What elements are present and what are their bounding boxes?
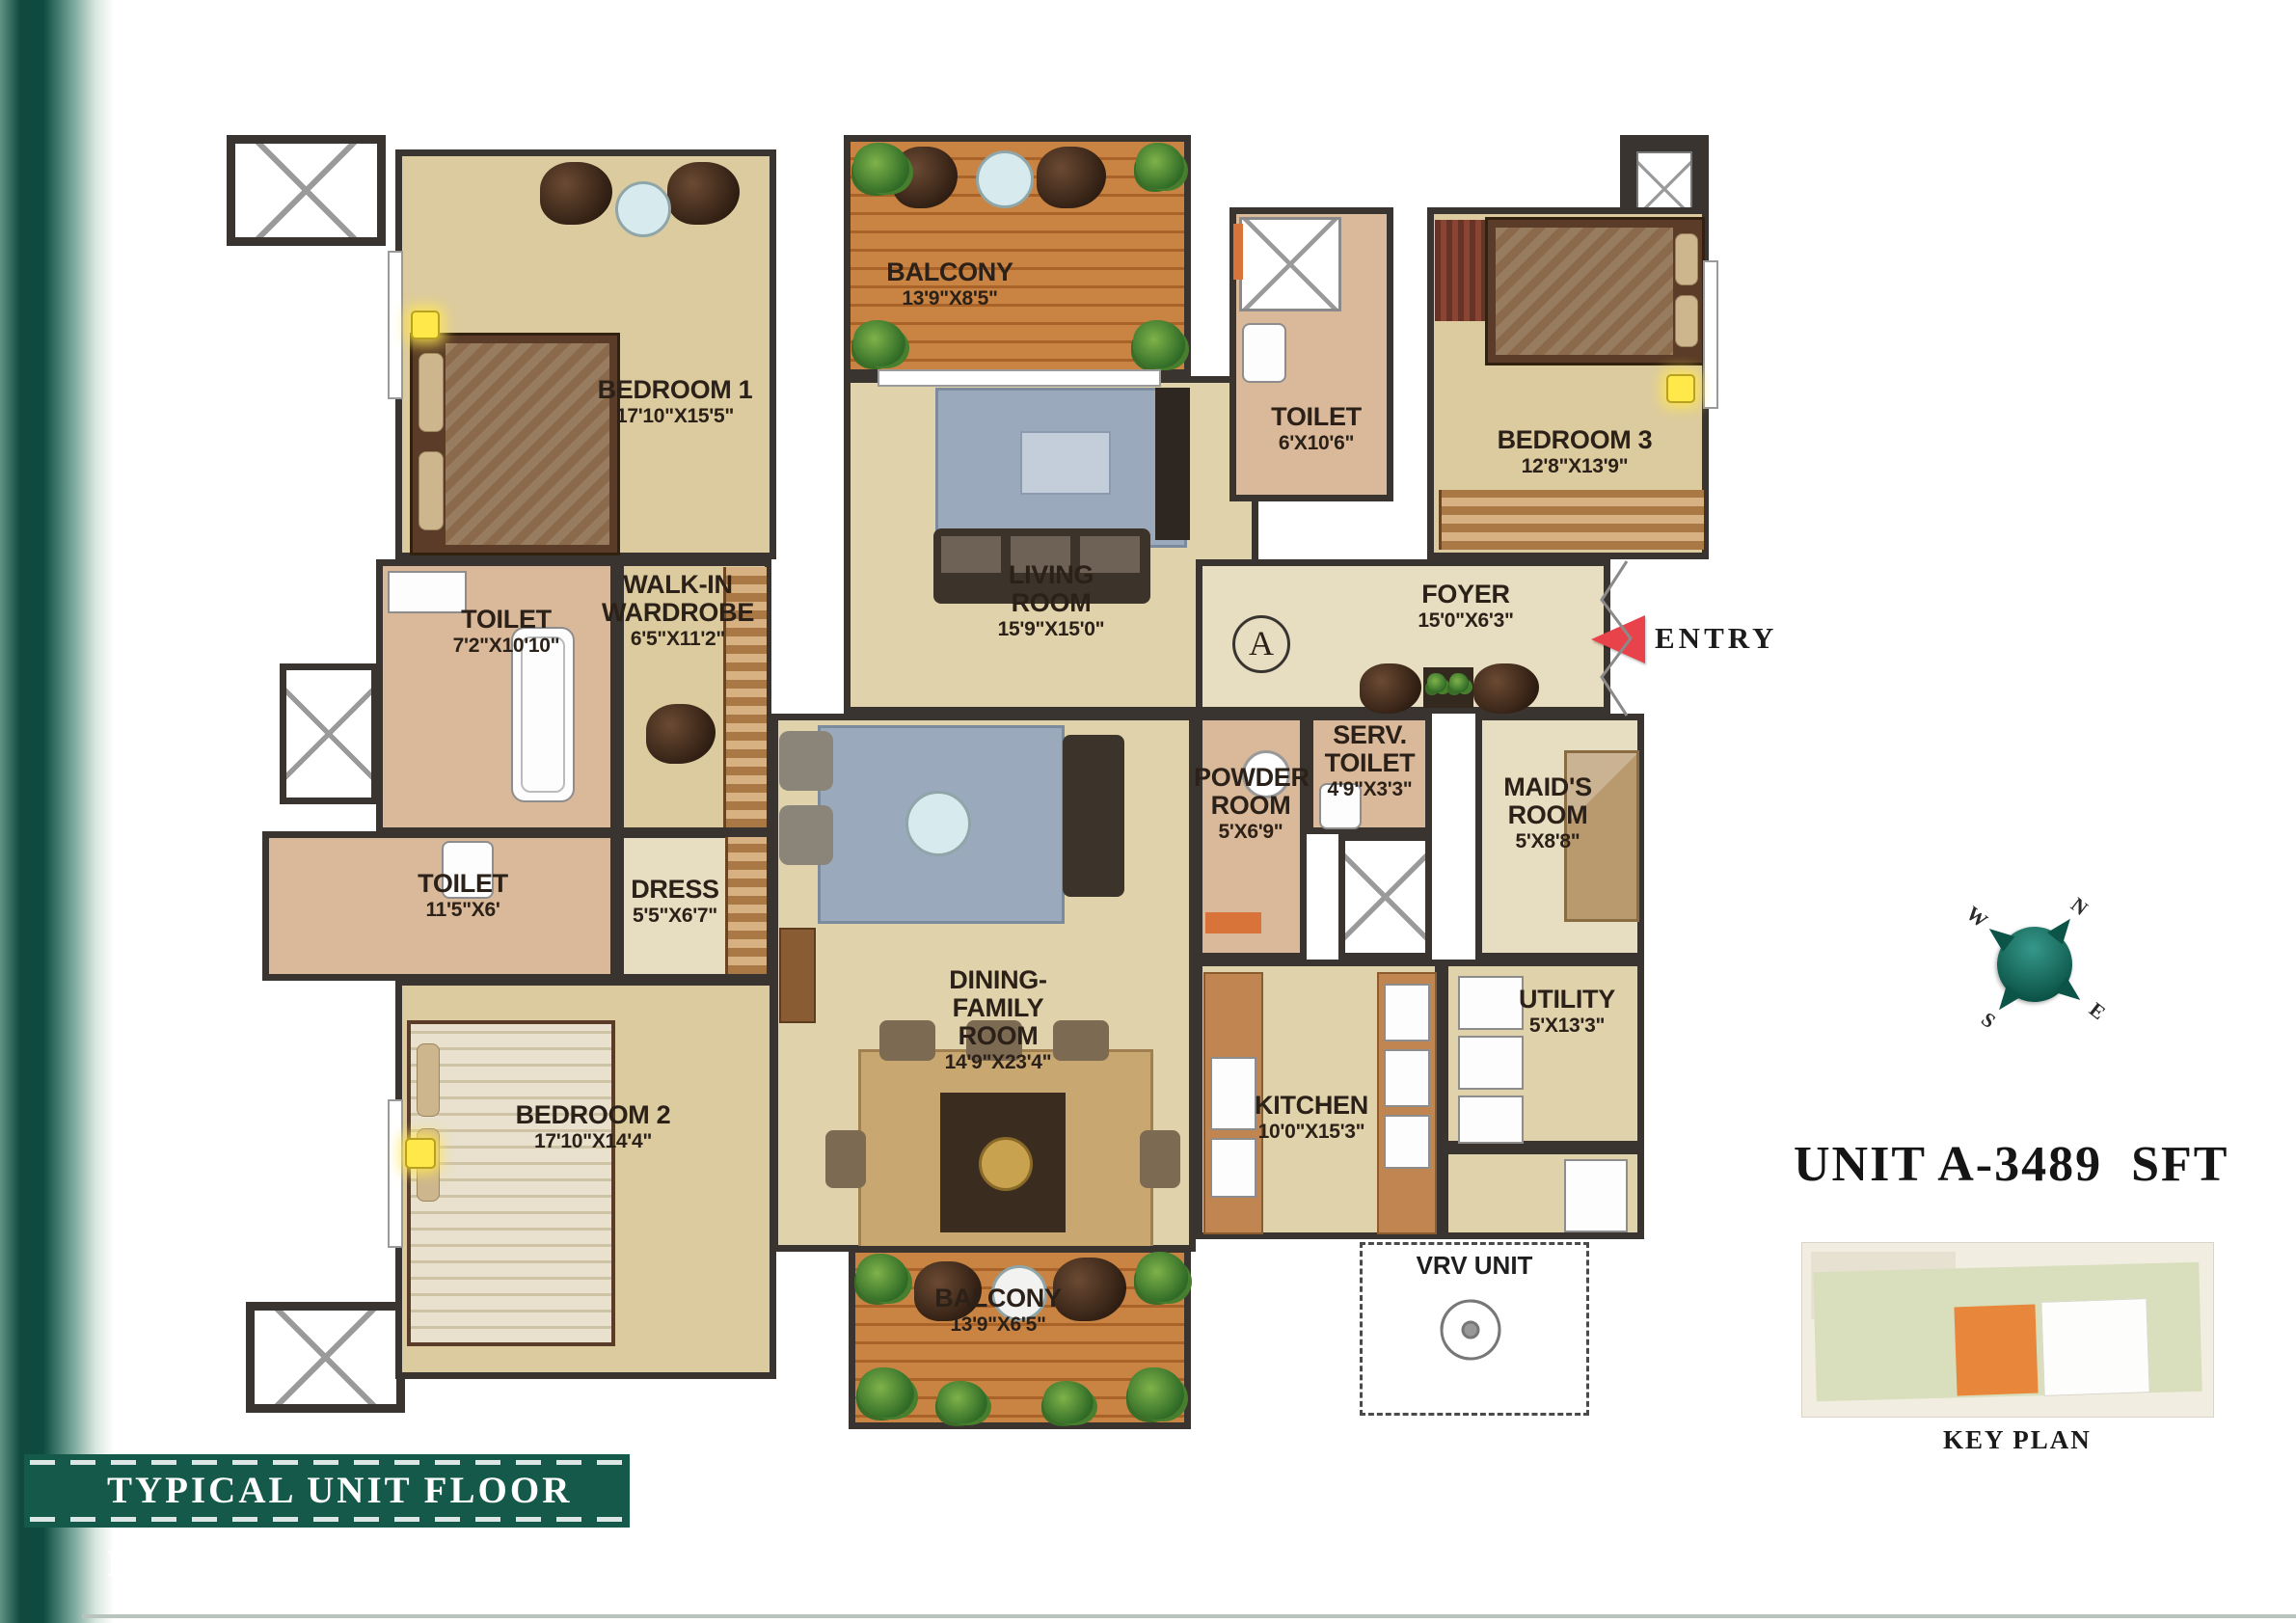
compass-rose: N S E W — [1924, 853, 2146, 1075]
side-table — [615, 181, 671, 237]
sink-unit — [1458, 1096, 1524, 1144]
vrv-unit-label: VRV UNIT — [1363, 1251, 1586, 1281]
shaft-x-icon — [1338, 834, 1432, 960]
key-plan-label: KEY PLAN — [1943, 1425, 2092, 1455]
compass-icon: N S E W — [1956, 885, 2114, 1043]
fan-icon — [1432, 1291, 1509, 1368]
vrv-unit-box: VRV UNIT — [1360, 1242, 1589, 1416]
dining-room-label: DINING- FAMILY ROOM 14'9"X23'4" — [897, 966, 1099, 1075]
living-room-label: LIVING ROOM 15'9"X15'0" — [955, 561, 1148, 642]
section-marker-letter: A — [1249, 624, 1274, 663]
key-plan-map — [1801, 1242, 2214, 1418]
dining-table — [858, 1049, 1153, 1279]
elevator-shaft-icon — [227, 135, 386, 246]
shower-icon — [280, 663, 378, 804]
key-plan-highlighted-unit — [1954, 1305, 2038, 1396]
serv-toilet-label: SERV. TOILET 4'9"X3'3" — [1310, 721, 1430, 802]
dining-chair — [825, 1130, 866, 1188]
fixture — [1233, 224, 1243, 280]
plant-icon — [937, 1381, 987, 1423]
compass-label-e: E — [2085, 998, 2110, 1025]
bed — [407, 1020, 615, 1346]
entry-label: ENTRY — [1655, 621, 1777, 656]
maids-room-label: MAID'S ROOM 5'X8'8" — [1485, 773, 1610, 854]
recliner — [779, 805, 833, 865]
window — [1703, 260, 1718, 409]
unit-area-label: UNIT A-3489 SFT — [1794, 1136, 2228, 1193]
section-marker-a: A — [1232, 615, 1290, 673]
toilet-master-label: TOILET 7'2"X10'10" — [415, 606, 598, 658]
floor-plan-page: BEDROOM 1 17'10"X15'5" BALCONY 13'9"X8'5… — [0, 0, 2296, 1623]
left-accent-strip — [0, 0, 114, 1623]
sideboard — [779, 928, 816, 1023]
wardrobe-label: WALK-IN WARDROBE 6'5"X11'2" — [596, 571, 760, 652]
plant-icon — [1128, 1367, 1184, 1420]
toilet-2-label: TOILET 11'5"X6' — [366, 870, 559, 922]
utility-label: UTILITY 5'X13'3" — [1485, 986, 1649, 1038]
dining-chair — [1140, 1130, 1180, 1188]
fridge — [1564, 1159, 1628, 1232]
wardrobe-strip — [1439, 490, 1704, 550]
key-plan-other-unit — [2040, 1298, 2149, 1396]
plant-icon — [1136, 143, 1184, 189]
compass-label-n: N — [2066, 893, 2092, 921]
bed — [1485, 217, 1705, 365]
compass-label-w: W — [1961, 902, 1992, 933]
console-table — [1423, 667, 1473, 708]
bedroom-2-label: BEDROOM 2 17'10"X14'4" — [482, 1101, 704, 1153]
toilet-top-label: TOILET 6'X10'6" — [1239, 403, 1393, 455]
plant-icon — [858, 1367, 914, 1418]
plant-icon — [853, 320, 905, 366]
bedroom-1-label: BEDROOM 1 17'10"X15'5" — [559, 376, 791, 428]
sliding-door — [878, 369, 1161, 387]
elevator-shaft-icon — [246, 1302, 405, 1413]
shower-icon — [1239, 217, 1341, 311]
fixture — [1205, 912, 1261, 933]
unit-floor-plan: BEDROOM 1 17'10"X15'5" BALCONY 13'9"X8'5… — [222, 135, 1707, 1432]
plant-icon — [853, 143, 909, 193]
entry-door-icon — [1596, 559, 1636, 718]
sink-unit — [1458, 1036, 1524, 1090]
bedroom-3-label: BEDROOM 3 12'8"X13'9" — [1445, 426, 1705, 478]
tv-console — [1155, 388, 1190, 540]
page-divider — [82, 1614, 2296, 1618]
plant-icon — [1136, 1252, 1188, 1302]
compass-label-s: S — [1977, 1008, 2001, 1034]
kitchen-label: KITCHEN 10'0"X15'3" — [1225, 1092, 1398, 1144]
recliner — [779, 731, 833, 791]
ceiling-light-icon — [405, 1138, 436, 1169]
title-banner: TYPICAL UNIT FLOOR PLAN — [24, 1454, 630, 1528]
rug — [1435, 220, 1485, 321]
ceiling-light-icon — [1666, 374, 1695, 403]
window — [388, 251, 403, 399]
family-rug — [818, 725, 1065, 924]
dress-label: DRESS 5'5"X6'7" — [603, 876, 747, 928]
window — [388, 1099, 403, 1248]
powder-room-label: POWDER ROOM 5'X6'9" — [1194, 764, 1308, 845]
living-rug — [935, 388, 1187, 548]
balcony-top-label: BALCONY 13'9"X8'5" — [820, 258, 1080, 311]
bed — [410, 333, 620, 555]
wc — [1242, 323, 1286, 383]
balcony-table — [976, 150, 1034, 208]
plant-icon — [1133, 320, 1185, 368]
plant-icon — [1043, 1381, 1094, 1423]
foyer-label: FOYER 15'0"X6'3" — [1369, 581, 1562, 633]
ceiling-light-icon — [411, 311, 440, 339]
balcony-bottom-label: BALCONY 13'9"X6'5" — [868, 1285, 1128, 1337]
sofa — [1063, 735, 1124, 897]
